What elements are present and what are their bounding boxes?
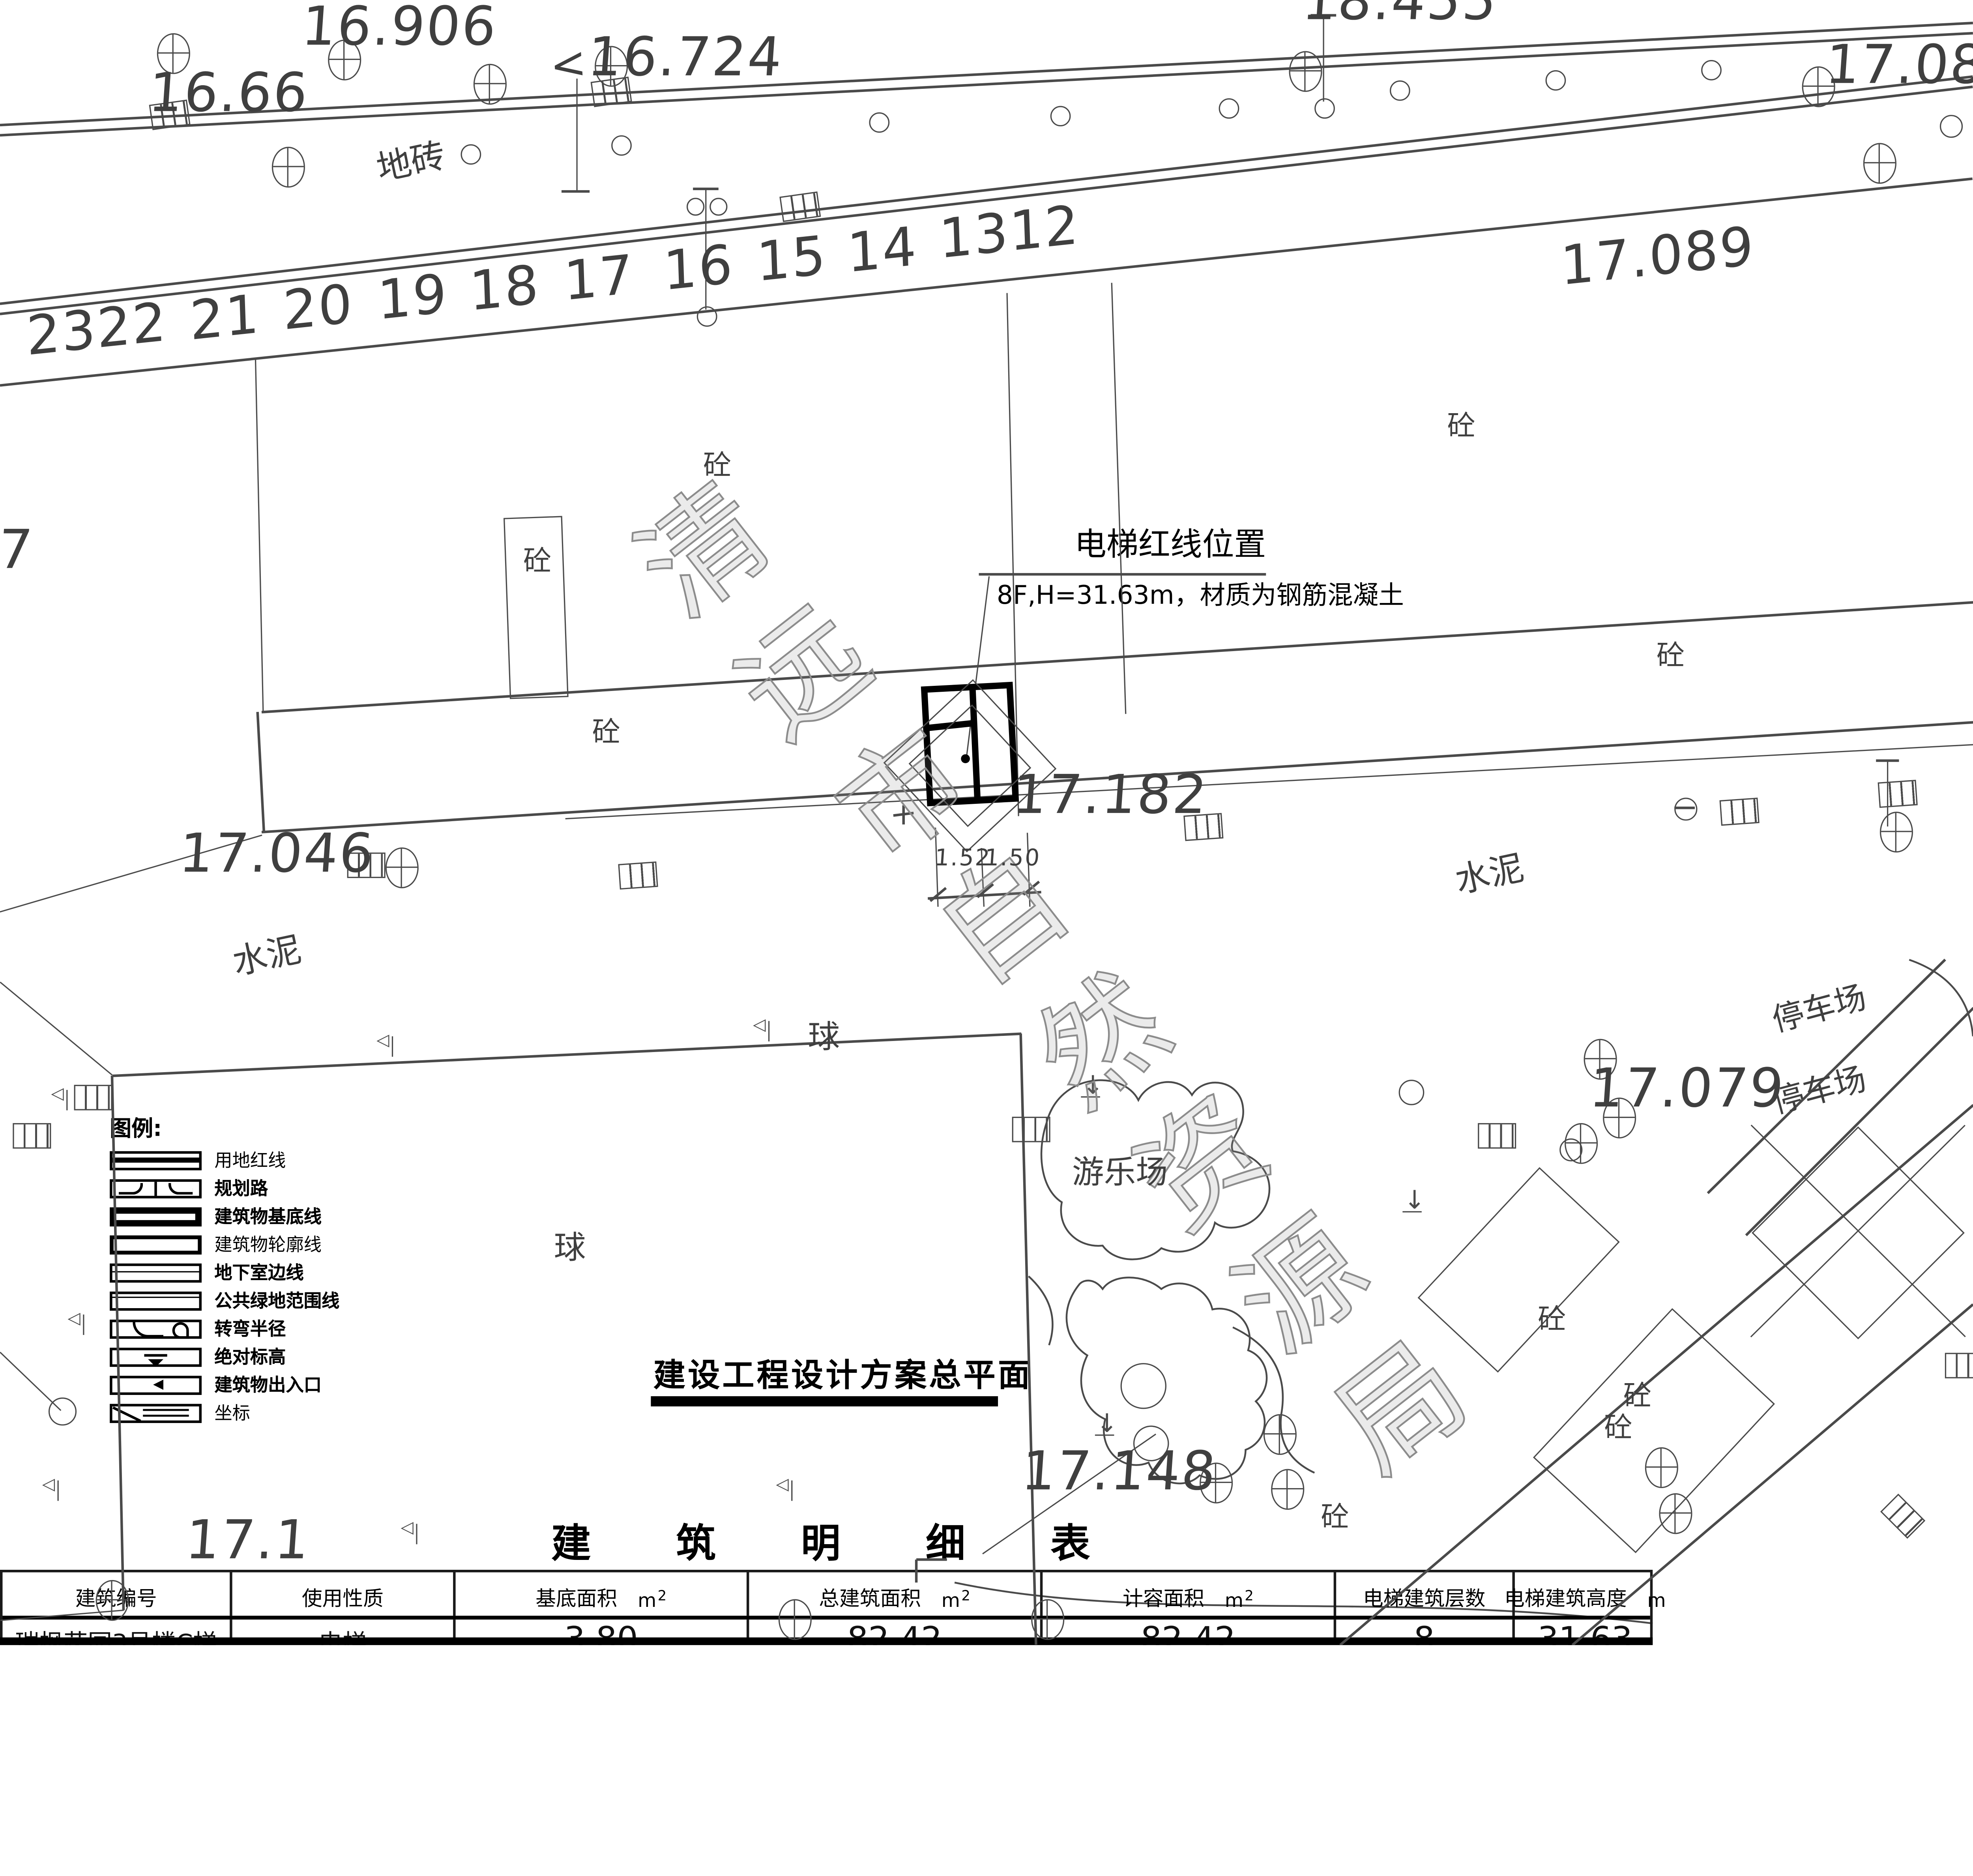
- surface-label: 球: [808, 1021, 840, 1053]
- legend-item: 规划路: [110, 1174, 339, 1202]
- table-header-cell: 使用性质: [232, 1572, 456, 1616]
- shrub-icon: [1121, 1363, 1166, 1409]
- tree-icon: [96, 1580, 129, 1621]
- elevation-label: 17.1: [184, 1514, 312, 1567]
- surface-label: 砼: [592, 720, 620, 748]
- drawing-line: [915, 1560, 917, 1582]
- elevation-label: 19: [376, 267, 449, 328]
- surface-label: 砼: [703, 453, 731, 481]
- legend-item: 地下室边线: [110, 1258, 339, 1286]
- legend-item: 坐标: [110, 1399, 339, 1427]
- elevator-redline-callout-title: 电梯红线位置: [1074, 528, 1266, 560]
- tree-icon: [779, 1599, 812, 1640]
- down-arrow-icon: ↓: [1404, 1184, 1425, 1215]
- shrub-icon: [1674, 798, 1697, 820]
- elevator-spec-callout: 8F,H=31.63m，材质为钢筋混凝土: [997, 582, 1404, 608]
- down-arrow-icon: ↓: [1096, 1408, 1118, 1438]
- legend-item: 公共绿地范围线: [110, 1286, 339, 1314]
- elevation-label: 1.50: [984, 847, 1042, 870]
- culvert-hatch-icon: [1878, 780, 1918, 808]
- legend: 图例: 用地红线规划路建筑物基底线建筑物轮廓线地下室边线公共绿地范围线转弯半径绝…: [110, 1110, 339, 1427]
- shrub-icon: [1399, 1080, 1425, 1105]
- table-header-cell: 基底面积m2: [456, 1572, 749, 1616]
- shrub-icon: [461, 144, 481, 165]
- outline-legend-icon: [110, 1235, 202, 1254]
- tree-icon: [1863, 143, 1896, 183]
- drawing-line: [693, 187, 719, 190]
- building-box: [504, 516, 569, 699]
- elevation-label: <: [549, 41, 589, 89]
- surface-label: 游乐场: [1072, 1156, 1168, 1188]
- coord-legend-icon: [110, 1403, 202, 1423]
- drawing-line: [1876, 759, 1899, 762]
- elevation-label: 16.906: [300, 0, 499, 54]
- shrub-icon: [1314, 98, 1335, 119]
- shrub-icon: [1559, 1138, 1582, 1161]
- site-plan-canvas: 图例: 用地红线规划路建筑物基底线建筑物轮廓线地下室边线公共绿地范围线转弯半径绝…: [0, 0, 1973, 1645]
- legend-label: 建筑物出入口: [214, 1372, 322, 1398]
- basement-legend-icon: [110, 1263, 202, 1282]
- legend-title: 图例:: [110, 1110, 339, 1142]
- surface-label: 砼: [1623, 1384, 1651, 1412]
- legend-item: 用地红线: [110, 1146, 339, 1174]
- legend-item: 建筑物基底线: [110, 1202, 339, 1230]
- tree-icon: [272, 147, 305, 187]
- surface-label: 砼: [1657, 643, 1685, 671]
- drawing-line: [916, 1558, 947, 1561]
- legend-label: 坐标: [214, 1400, 250, 1426]
- tree-icon: [1264, 1414, 1297, 1455]
- tree-icon: [1031, 1599, 1064, 1640]
- elevation-label: 21: [189, 287, 261, 348]
- survey-flag-icon: ◁: [376, 1031, 397, 1057]
- culvert-hatch-icon: [1720, 798, 1760, 826]
- legend-item: 建筑物轮廓线: [110, 1230, 339, 1258]
- elevation-label: 17: [563, 248, 635, 309]
- survey-flag-icon: ◁: [51, 1085, 71, 1110]
- elevation-label: 16: [663, 238, 735, 299]
- surface-label: 砼: [1604, 1415, 1632, 1444]
- elevation-label: 16.66: [147, 66, 311, 120]
- legend-label: 地下室边线: [214, 1260, 303, 1285]
- tree-icon: [1659, 1493, 1692, 1534]
- plan-title-underline: [651, 1396, 998, 1406]
- road-legend-icon: [110, 1179, 202, 1198]
- legend-label: 建筑物基底线: [214, 1204, 322, 1229]
- shrub-icon: [1940, 115, 1963, 138]
- shrub-icon: [709, 198, 727, 215]
- table-header-cell: 电梯建筑高度m: [1515, 1572, 1655, 1616]
- elev-legend-icon: [110, 1347, 202, 1367]
- elevation-label: 17.148: [1020, 1445, 1219, 1498]
- elevation-label: 17.046: [178, 827, 376, 881]
- shrub-icon: [611, 135, 632, 156]
- green-legend-icon: [110, 1291, 202, 1310]
- turn-legend-icon: [110, 1319, 202, 1338]
- elevation-label: 7: [0, 523, 36, 577]
- culvert-hatch-icon: [74, 1085, 112, 1110]
- drawing-line: [562, 190, 590, 193]
- legend-label: 转弯半径: [214, 1316, 286, 1341]
- slide-arc: [1029, 1276, 1053, 1345]
- table-header-cell: 计容面积m2: [1043, 1572, 1336, 1616]
- table-header-cell: 电梯建筑层数: [1336, 1572, 1515, 1616]
- shrub-icon: [1050, 106, 1071, 126]
- elevation-label: 1.52: [934, 847, 992, 870]
- surface-label: 砼: [1321, 1505, 1349, 1533]
- legend-label: 用地红线: [214, 1148, 286, 1173]
- shrub-icon: [1701, 60, 1722, 81]
- elevation-label: 18: [468, 258, 541, 319]
- survey-flag-icon: ◁: [67, 1309, 88, 1335]
- tree-icon: [1880, 812, 1913, 852]
- shrub-icon: [1219, 98, 1239, 119]
- tree-icon: [1271, 1469, 1304, 1510]
- legend-label: 绝对标高: [214, 1344, 286, 1370]
- culvert-hatch-icon: [13, 1123, 51, 1149]
- survey-flag-icon: ◁: [401, 1519, 421, 1545]
- shrub-icon: [697, 306, 717, 327]
- tree-icon: [386, 847, 419, 888]
- building-detail-table: 建筑编号使用性质基底面积m2总建筑面积m2计容面积m2电梯建筑层数电梯建筑高度m…: [0, 1570, 1653, 1645]
- shrub-icon: [49, 1397, 77, 1425]
- elevation-label: 17.08: [1824, 38, 1973, 92]
- elevation-label: 20: [282, 277, 354, 338]
- elevation-label: 16.724: [586, 31, 785, 84]
- elevation-label: 14: [846, 220, 918, 281]
- legend-item: 建筑物出入口: [110, 1370, 339, 1399]
- shrub-icon: [1546, 70, 1566, 91]
- legend-rows: 用地红线规划路建筑物基底线建筑物轮廓线地下室边线公共绿地范围线转弯半径绝对标高建…: [110, 1146, 339, 1427]
- culvert-hatch-icon: [1945, 1353, 1973, 1378]
- plan-title: 建设工程设计方案总平面: [653, 1350, 1033, 1396]
- elevation-label: 18.455: [1301, 0, 1499, 28]
- drawing-line: [576, 79, 578, 191]
- legend-label: 公共绿地范围线: [214, 1288, 339, 1313]
- base-legend-icon: [110, 1207, 202, 1226]
- elevation-label: 17.079: [1587, 1062, 1786, 1116]
- parking-arc: [1909, 960, 1973, 1036]
- legend-item: 绝对标高: [110, 1342, 339, 1370]
- entrance-legend-icon: [110, 1375, 202, 1395]
- shrub-icon: [1390, 81, 1410, 101]
- elevation-label: 17.182: [1011, 768, 1210, 822]
- legend-label: 规划路: [214, 1176, 268, 1201]
- shrub-icon: [687, 198, 704, 215]
- legend-label: 建筑物轮廓线: [214, 1232, 322, 1257]
- tree-icon: [1645, 1447, 1678, 1488]
- culvert-hatch-icon: [618, 861, 658, 889]
- culvert-hatch-icon: [1012, 1117, 1050, 1142]
- building-table-title: 建 筑 明 细 表: [551, 1511, 1126, 1569]
- legend-item: 转弯半径: [110, 1314, 339, 1342]
- survey-flag-icon: ◁: [776, 1475, 796, 1501]
- surface-label: 球: [554, 1232, 586, 1264]
- survey-flag-icon: ◁: [753, 1016, 773, 1041]
- surface-label: 砼: [523, 549, 551, 577]
- surface-label: 砼: [1538, 1307, 1566, 1335]
- tree-icon: [1289, 51, 1322, 92]
- redline-legend-icon: [110, 1151, 202, 1170]
- table-bottom-border: [0, 1637, 1653, 1645]
- elevation-label: 1312: [938, 198, 1080, 267]
- tree-icon: [474, 64, 507, 105]
- surface-label: 砼: [1447, 414, 1475, 442]
- shrub-icon: [869, 112, 889, 133]
- culvert-hatch-icon: [1478, 1123, 1516, 1149]
- drawing-line: [979, 573, 1266, 576]
- elevation-label: 15: [756, 229, 828, 290]
- culvert-hatch-icon: [779, 191, 821, 222]
- elevation-label: 2322: [26, 295, 168, 364]
- survey-flag-icon: ◁: [42, 1475, 63, 1501]
